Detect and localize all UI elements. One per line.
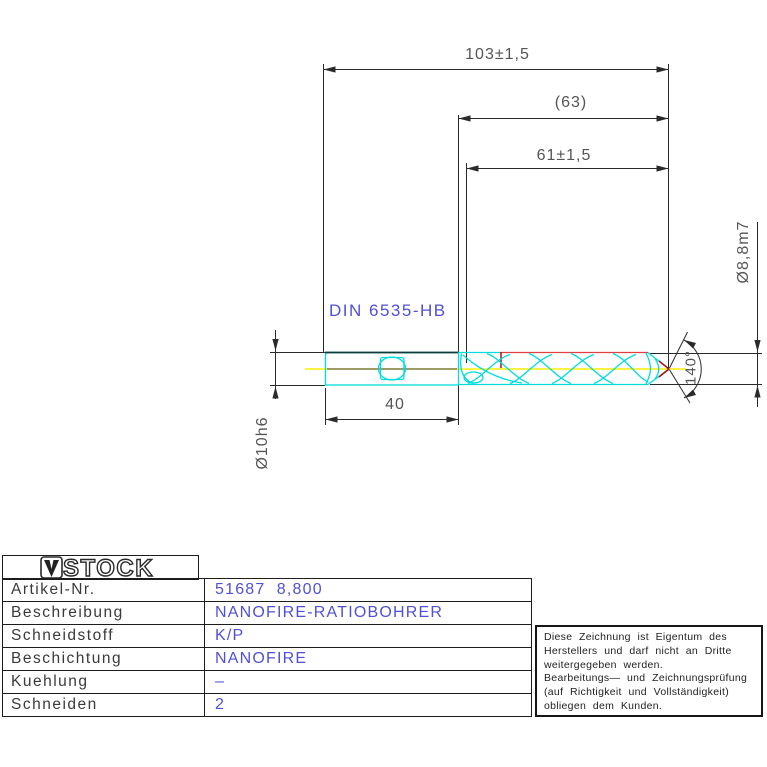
row-label: Artikel-Nr. xyxy=(3,579,205,601)
row-value: 2 xyxy=(205,694,531,716)
disclaimer-line: Bearbeitungs— und Zeichnungsprüfung xyxy=(544,672,759,686)
row-label: Beschreibung xyxy=(3,602,205,624)
dim-flute-length: 61±1,5 xyxy=(522,147,606,165)
dim-shank-diameter: Ø10h6 xyxy=(254,388,272,498)
row-value: NANOFIRE-RATIOBOHRER xyxy=(205,602,531,624)
row-label: Kuehlung xyxy=(3,671,205,693)
dim-point-angle: 140° xyxy=(683,340,700,396)
row-label: Schneidstoff xyxy=(3,625,205,647)
row-value: 51687 8,800 xyxy=(205,579,531,601)
table-row: Beschichtung NANOFIRE xyxy=(3,648,531,671)
logo-cell: STOCK xyxy=(2,555,199,580)
title-block-rows: Artikel-Nr. 51687 8,800 Beschreibung NAN… xyxy=(2,578,532,717)
row-label: Schneiden xyxy=(3,694,205,716)
row-label: Beschichtung xyxy=(3,648,205,670)
stock-logo: STOCK xyxy=(3,554,198,580)
table-row: Beschreibung NANOFIRE-RATIOBOHRER xyxy=(3,602,531,625)
table-row: Kuehlung – xyxy=(3,671,531,694)
technical-drawing-page: 103±1,5 (63) 61±1,5 40 Ø8,8m7 Ø10h6 140°… xyxy=(0,0,767,767)
disclaimer-line: Herstellers und darf nicht an Dritte xyxy=(544,645,759,659)
table-row: Schneidstoff K/P xyxy=(3,625,531,648)
disclaimer-line: Diese Zeichnung ist Eigentum des xyxy=(544,631,759,645)
din-standard-label: DIN 6535-HB xyxy=(329,301,447,321)
row-value: – xyxy=(205,671,531,693)
disclaimer-line: weitergegeben werden. xyxy=(544,659,759,673)
disclaimer-box: Diese Zeichnung ist Eigentum des Herstel… xyxy=(535,625,763,717)
row-value: K/P xyxy=(205,625,531,647)
point-edge-red-upper xyxy=(659,361,669,369)
drill-geometry xyxy=(305,352,686,385)
row-value: NANOFIRE xyxy=(205,648,531,670)
point-edge-red-lower xyxy=(659,369,669,377)
disclaimer-line: obliegen dem Kunden. xyxy=(544,700,759,714)
table-row: Schneiden 2 xyxy=(3,694,531,716)
disclaimer-line: (auf Richtigkeit und Vollständigkeit) xyxy=(544,686,759,700)
dim-flute-ref-length: (63) xyxy=(532,94,610,112)
table-row: Artikel-Nr. 51687 8,800 xyxy=(3,579,531,602)
dim-shank-length: 40 xyxy=(365,396,425,414)
dim-overall-length: 103±1,5 xyxy=(445,46,550,64)
title-block: STOCK Artikel-Nr. 51687 8,800 Beschreibu… xyxy=(2,555,533,718)
dim-drill-diameter: Ø8,8m7 xyxy=(735,197,753,307)
